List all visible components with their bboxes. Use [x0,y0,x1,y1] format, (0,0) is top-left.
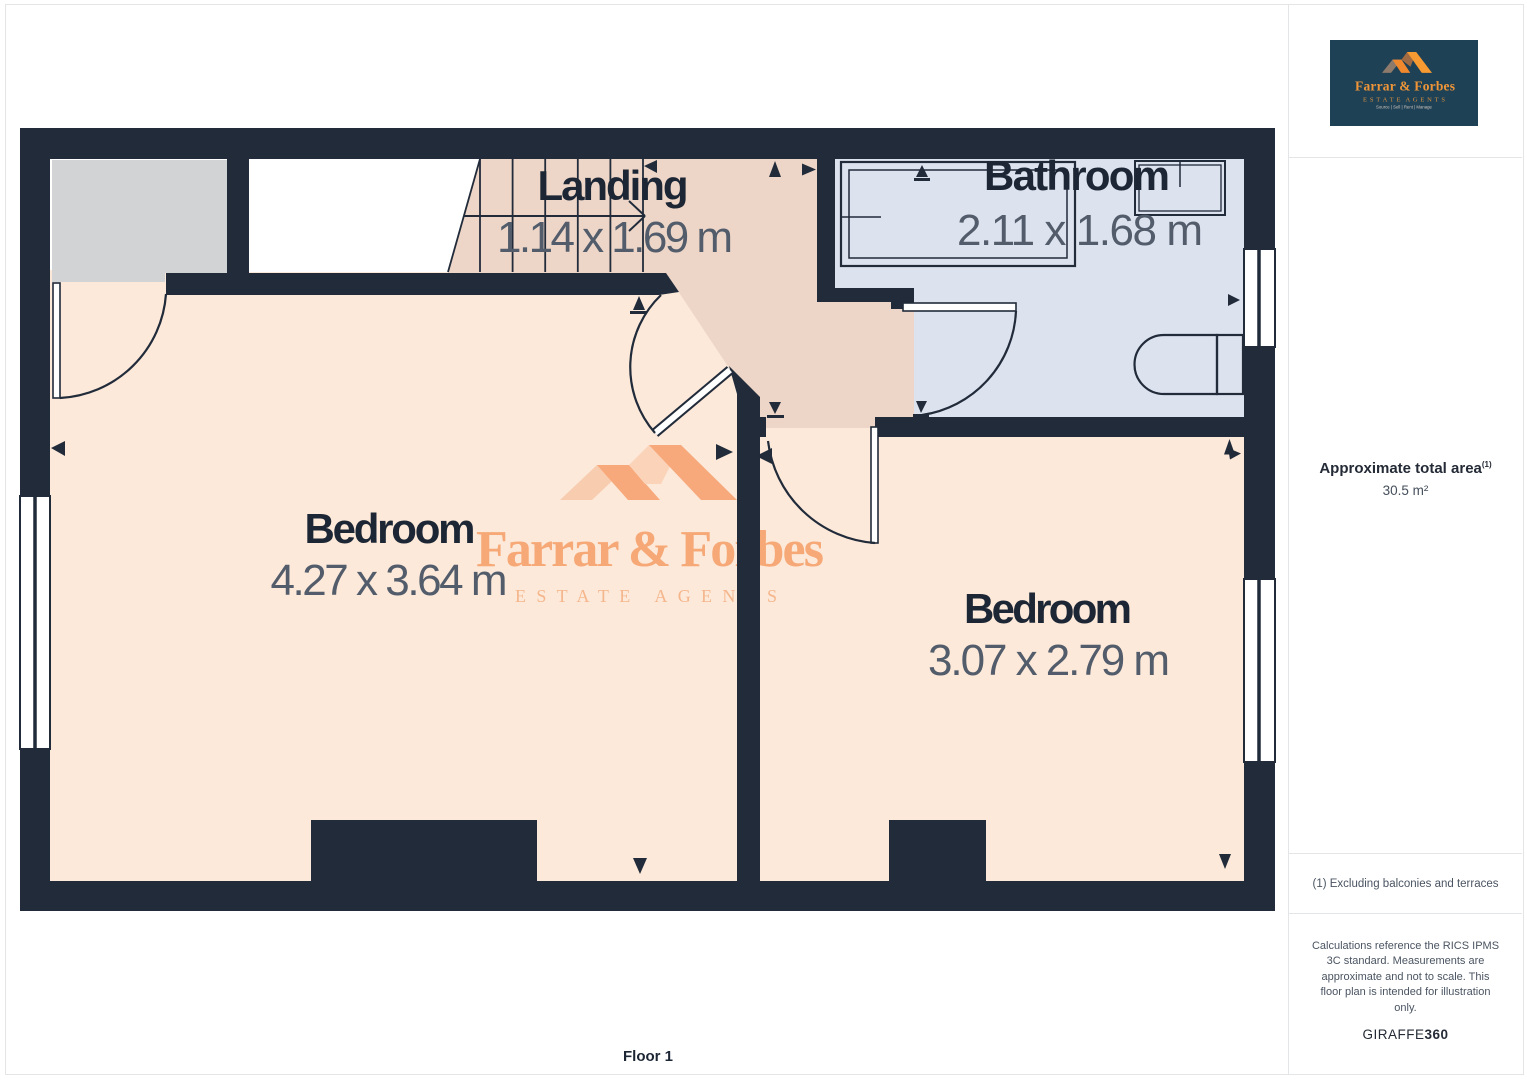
svg-text:4.27 x 3.64 m: 4.27 x 3.64 m [271,556,508,605]
svg-text:Source | Sell | Rent | Manage: Source | Sell | Rent | Manage [1376,105,1433,110]
svg-text:Farrar & Forbes: Farrar & Forbes [476,521,824,578]
svg-text:1.14 x 1.69 m: 1.14 x 1.69 m [497,213,733,262]
svg-text:Landing: Landing [538,162,689,209]
svg-text:2.11 x 1.68 m: 2.11 x 1.68 m [957,206,1203,255]
svg-text:E S T A T E A G E N T S: E S T A T E A G E N T S [1363,97,1445,104]
svg-text:Bathroom: Bathroom [984,152,1170,199]
svg-text:Bedroom: Bedroom [305,505,476,552]
svg-text:Floor 1: Floor 1 [623,1048,673,1065]
svg-text:Farrar & Forbes: Farrar & Forbes [1355,79,1455,94]
svg-text:3.07 x 2.79 m: 3.07 x 2.79 m [928,636,1170,685]
svg-text:Bedroom: Bedroom [964,585,1132,632]
